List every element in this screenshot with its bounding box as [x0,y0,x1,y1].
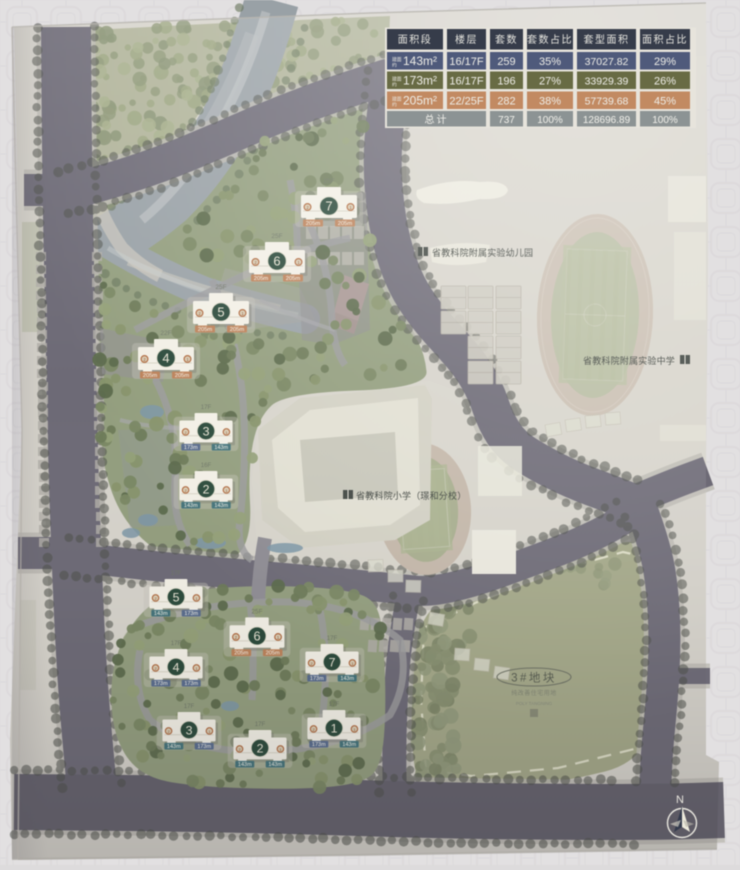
svg-text:57739.68: 57739.68 [585,96,629,108]
svg-text:128696.89: 128696.89 [583,115,631,126]
svg-text:面积段: 面积段 [398,33,433,46]
svg-text:N: N [676,794,684,806]
svg-text:282: 282 [497,96,515,108]
svg-text:22/25F: 22/25F [449,96,484,108]
svg-text:259: 259 [497,56,515,68]
svg-text:建面: 建面 [392,96,402,103]
svg-text:100%: 100% [652,115,678,126]
svg-text:16/17F: 16/17F [449,76,484,88]
svg-text:37027.82: 37027.82 [585,56,629,68]
svg-text:173m²: 173m² [403,74,437,88]
svg-text:33929.39: 33929.39 [585,76,629,88]
svg-text:楼层: 楼层 [455,33,478,46]
svg-text:35%: 35% [539,56,561,68]
svg-text:143m²: 143m² [403,54,437,68]
svg-text:205m²: 205m² [403,94,437,108]
svg-text:45%: 45% [654,96,676,108]
svg-text:26%: 26% [654,76,676,88]
svg-text:套数: 套数 [495,33,518,46]
svg-text:196: 196 [497,76,515,88]
svg-text:16/17F: 16/17F [449,56,484,68]
svg-text:建面: 建面 [392,56,402,63]
svg-text:100%: 100% [537,115,563,126]
svg-text:38%: 38% [539,96,561,108]
svg-text:29%: 29% [654,56,676,68]
svg-text:737: 737 [498,115,515,126]
svg-text:27%: 27% [539,76,561,88]
svg-text:套型面积: 套型面积 [584,33,630,46]
svg-text:总计: 总计 [425,113,449,126]
svg-text:约: 约 [392,62,397,69]
svg-text:约: 约 [392,101,397,108]
svg-text:建面: 建面 [392,76,402,83]
svg-text:面积占比: 面积占比 [642,33,688,46]
svg-text:约: 约 [392,81,397,88]
svg-text:套数占比: 套数占比 [527,33,573,46]
